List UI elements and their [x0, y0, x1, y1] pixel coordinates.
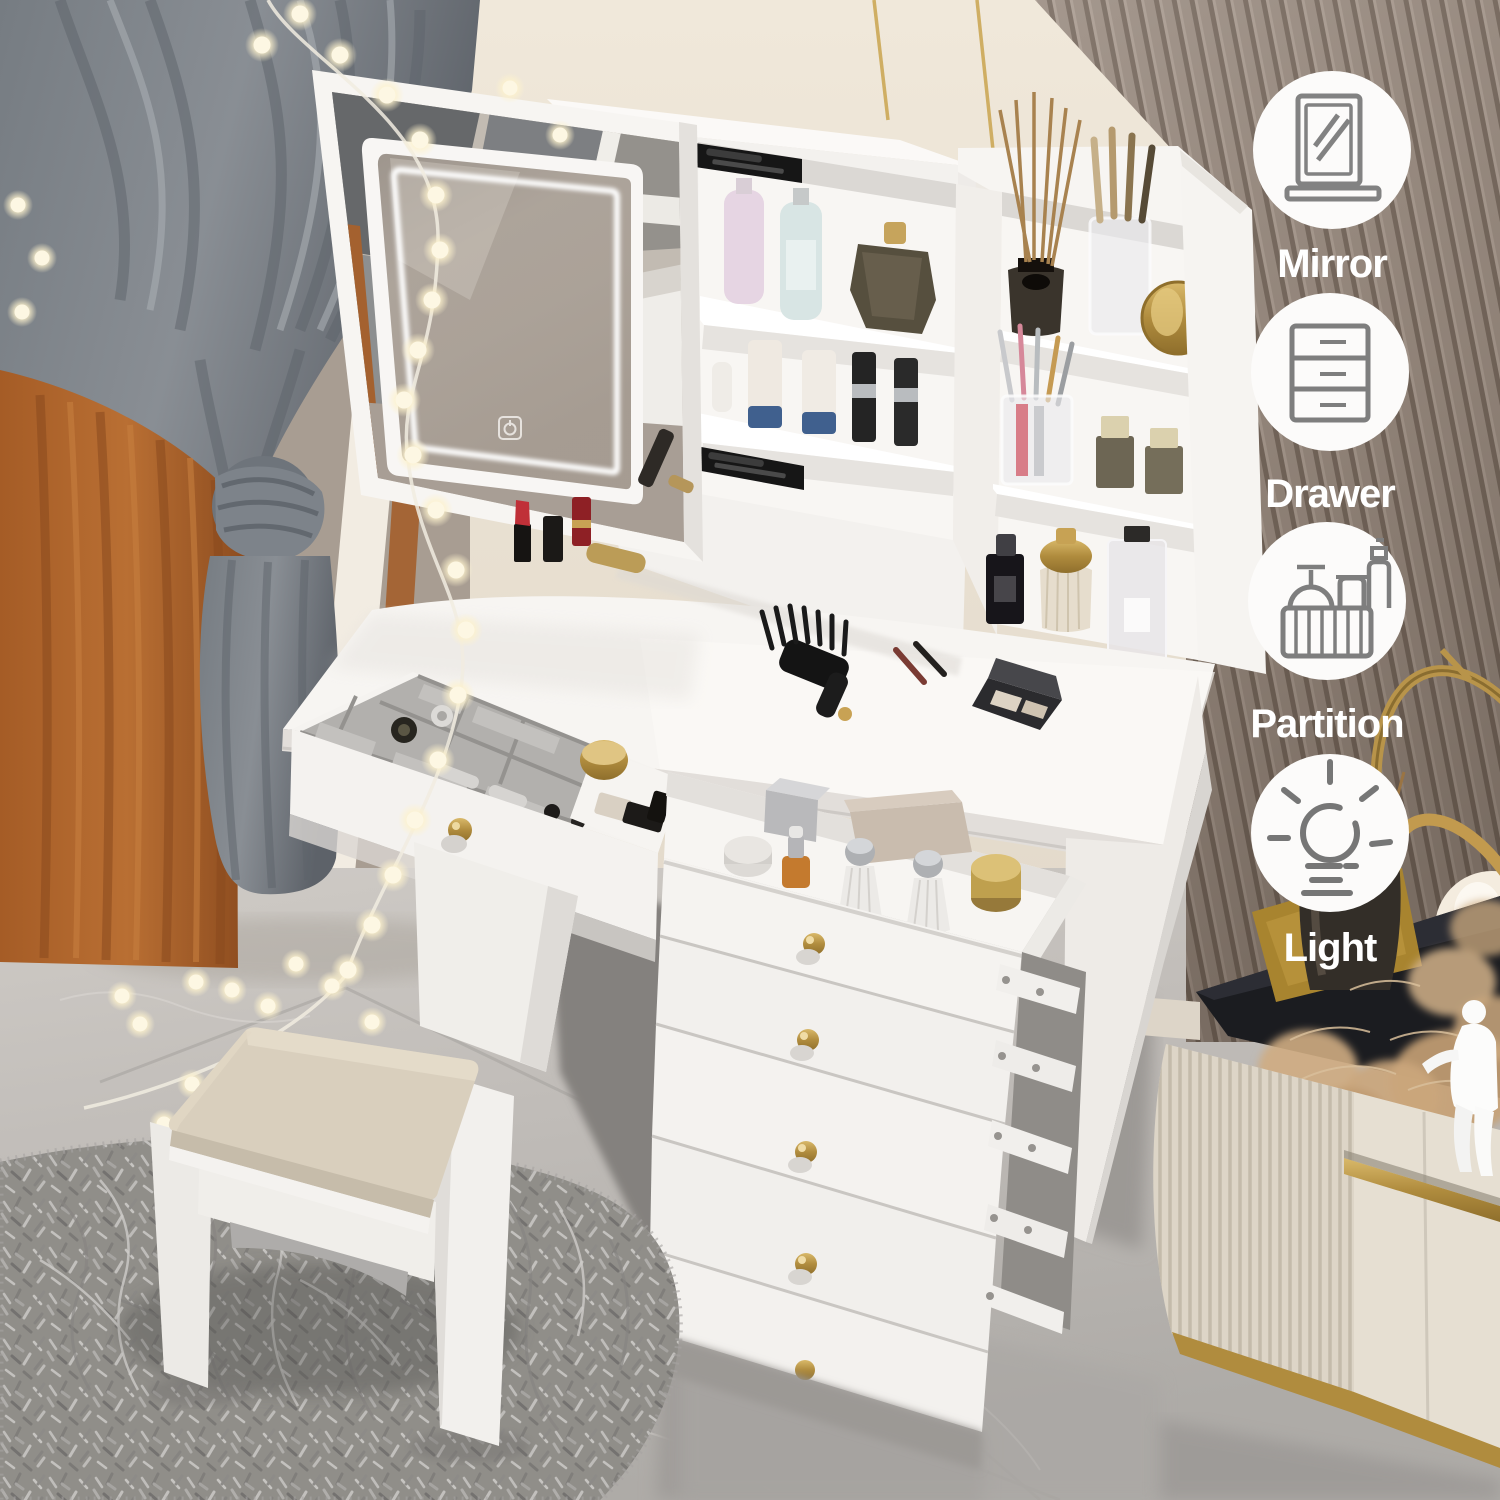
svg-text:Partition: Partition: [1250, 702, 1403, 746]
svg-text:Mirror: Mirror: [1277, 242, 1387, 286]
svg-text:Light: Light: [1284, 926, 1377, 970]
svg-text:Drawer: Drawer: [1265, 472, 1395, 516]
